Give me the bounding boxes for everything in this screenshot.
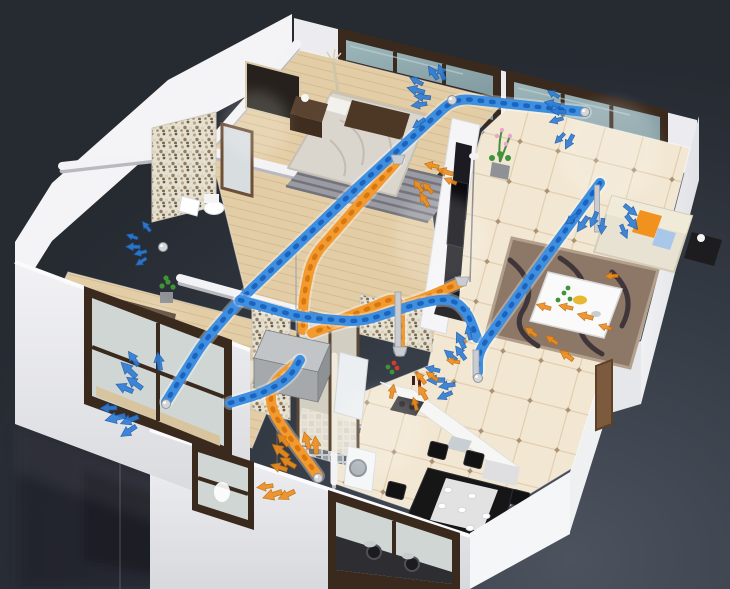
diffuser-bedroom2-supply — [162, 400, 171, 409]
bottle — [412, 376, 415, 385]
counter-flowers — [395, 366, 400, 371]
plant-leaves — [170, 284, 175, 289]
orchid-bloom — [508, 134, 512, 138]
toilet-tank — [204, 194, 219, 203]
counter-flowers — [390, 370, 395, 375]
table-plant — [556, 298, 561, 303]
plate — [444, 487, 452, 493]
plate — [468, 493, 476, 499]
orchid-bloom — [500, 128, 504, 132]
outlet-exterior-exhaust — [314, 474, 323, 483]
floorplan-stage — [0, 0, 730, 589]
orchid-bloom — [495, 134, 499, 138]
side-lamp — [697, 234, 705, 242]
counter-flowers — [386, 365, 391, 370]
orchid-leaf — [505, 155, 511, 161]
plant-leaves — [159, 283, 164, 288]
pot-through-window — [364, 541, 376, 548]
diffuser-master-supply — [448, 96, 457, 105]
bath1-toilet — [204, 202, 224, 215]
light-glow — [338, 388, 422, 472]
light-glow — [394, 194, 486, 286]
riser-sofa — [595, 185, 600, 232]
pot-through-window — [402, 553, 414, 560]
entry-door — [596, 360, 612, 430]
plate — [438, 503, 446, 509]
table-plant — [566, 286, 571, 291]
diffuser-hall-supply-highlight — [160, 244, 163, 247]
scene-svg — [0, 0, 730, 589]
diffuser-hall-supply — [159, 243, 168, 252]
plate — [466, 525, 474, 531]
orchid-bloom — [504, 142, 508, 146]
diffuser-master-supply-highlight — [449, 97, 452, 100]
counter-flowers — [392, 361, 397, 366]
light-glow — [221, 91, 289, 159]
toilet-through-window — [214, 482, 230, 502]
plate — [482, 513, 490, 519]
table-plant — [562, 291, 567, 296]
outlet-exterior-exhaust-highlight — [315, 475, 318, 478]
fruit-bowl — [573, 296, 587, 305]
plant-bedroom2-pot — [160, 292, 173, 303]
diffuser-dining-supply-highlight — [475, 375, 478, 378]
plant-leaves — [163, 275, 168, 280]
orchid-leaf — [497, 151, 503, 157]
diffuser-bedroom2-supply-highlight — [163, 401, 166, 404]
diffuser-dining-supply — [474, 374, 483, 383]
diffuser-living-back-supply — [581, 108, 590, 117]
diffuser-living-back-supply-highlight — [582, 109, 585, 112]
plate — [458, 507, 466, 513]
orchid-leaf — [489, 155, 495, 161]
riser-kitchen-exhaust — [395, 292, 401, 352]
floor-lamp-shade — [469, 153, 479, 160]
table-plant — [568, 297, 573, 302]
table-lamp — [301, 94, 309, 102]
